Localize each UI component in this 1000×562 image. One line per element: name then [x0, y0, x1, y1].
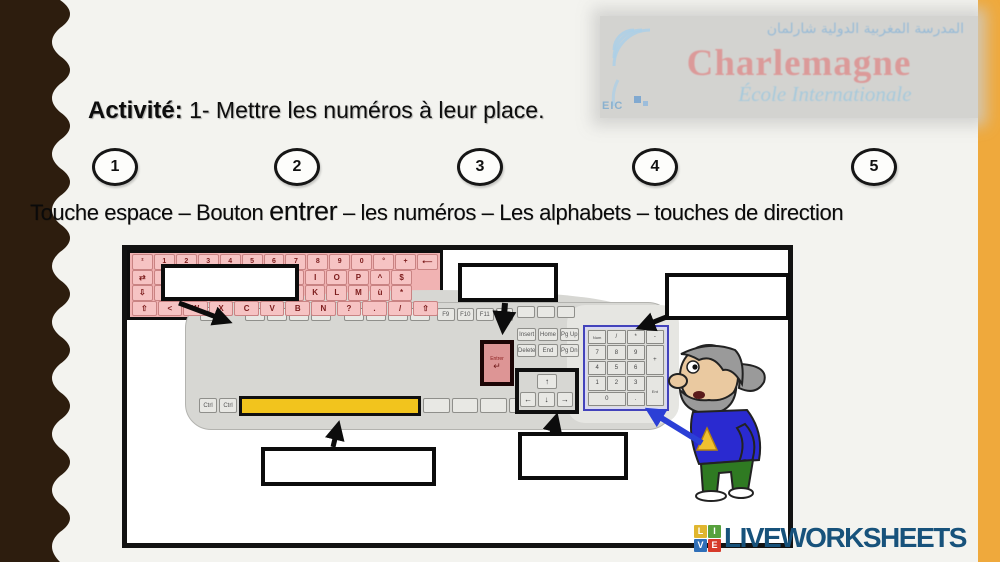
keyboard-key: ⟵ [417, 254, 438, 270]
keyboard-key: < [158, 301, 183, 317]
word-bank-segment: – les numéros – Les alphabets – touches … [337, 200, 843, 225]
system-keys [517, 306, 575, 318]
keypad-key: 8 [607, 345, 625, 359]
keypad-key: 6 [627, 361, 645, 375]
keyboard-key: ² [132, 254, 153, 270]
keyboard-key: Ctrl [199, 398, 217, 413]
keyboard-key: ⇄ [132, 270, 153, 286]
logo-tile-v: V [694, 539, 707, 552]
liveworksheets-logo: L I V E LIVEWORKSHEETS [694, 522, 966, 554]
answer-box-space[interactable] [261, 447, 436, 486]
keyboard-key: B [285, 301, 310, 317]
number-circle-2: 2 [274, 148, 320, 186]
school-logo: EIC المدرسة المغربية الدولية شارلمان Cha… [600, 16, 978, 118]
activity-title: Activité: 1- Mettre les numéros à leur p… [88, 97, 544, 125]
answer-box-alphabets[interactable] [161, 264, 299, 301]
keyboard-key: ↓ [538, 392, 554, 407]
keypad-key: 1 [588, 376, 606, 390]
brown-wave-border [0, 0, 100, 562]
keyboard-key [517, 306, 535, 318]
keyboard-key: Insert [517, 328, 536, 341]
keyboard-key: K [305, 285, 326, 301]
keypad-key: 7 [588, 345, 606, 359]
keypad-key: 2 [607, 376, 625, 390]
keyboard-key: $ [391, 270, 412, 286]
answer-box-enter[interactable] [458, 263, 558, 302]
logo-tile-e: E [708, 539, 721, 552]
nav-keys-row-2: DeleteEndPg Dn [517, 344, 579, 357]
word-bank-segment-entrer: entrer [269, 196, 337, 226]
logo-tile-l: L [694, 525, 707, 538]
keyboard-key: ⇧ [413, 301, 438, 317]
keyboard-key [480, 398, 507, 413]
keyboard-key: ⇩ [132, 285, 153, 301]
keyboard-key: L [326, 285, 347, 301]
keyboard-key: ← [520, 392, 536, 407]
arrow-bottom-row: ←↓→ [520, 392, 573, 407]
number-circle-4: 4 [632, 148, 678, 186]
keyboard-key: W [183, 301, 208, 317]
word-bank-segment: Touche espace – Bouton [30, 200, 269, 225]
keyboard-key: End [538, 344, 557, 357]
keyboard-key: I [305, 270, 326, 286]
answer-box-direction[interactable] [518, 432, 628, 480]
keyboard-key: 9 [329, 254, 350, 270]
keyboard-key: 0 [351, 254, 372, 270]
logo-subtitle: École Internationale [680, 82, 970, 107]
keyboard-key [537, 306, 555, 318]
keyboard-key: Delete [517, 344, 536, 357]
keyboard-key: ^ [370, 270, 391, 286]
orange-side-border [978, 0, 1000, 562]
keypad-key: Num [588, 330, 606, 344]
answer-box-numbers[interactable] [665, 273, 790, 320]
keyboard-key [452, 398, 479, 413]
keypad-key: 9 [627, 345, 645, 359]
keyboard-key: Ctrl [219, 398, 237, 413]
arrow-up-key: ↑ [537, 374, 557, 389]
keyboard-key: + [395, 254, 416, 270]
keyboard-key: Pg Dn [560, 344, 579, 357]
keyboard-key: . [362, 301, 387, 317]
worksheet-page: { "page": { "background": "#f3f3ef", "le… [0, 0, 1000, 562]
liveworksheets-icon: L I V E [694, 525, 721, 552]
keypad-key: 5 [607, 361, 625, 375]
word-bank: Touche espace – Bouton entrer – les numé… [30, 196, 990, 227]
keyboard-key: O [326, 270, 347, 286]
keyboard-key: F12 [496, 308, 514, 321]
arrow-up-row: ↑ [537, 374, 557, 389]
bottom-left-keys: CtrlCtrl [199, 398, 237, 413]
arrow-keys-highlight: ↑ ←↓→ [515, 368, 579, 414]
liveworksheets-wordmark: LIVEWORKSHEETS [724, 522, 966, 554]
keyboard-key: / [388, 301, 413, 317]
number-circle-5: 5 [851, 148, 897, 186]
logo-school-name: Charlemagne [634, 42, 964, 85]
keyboard-key [423, 398, 450, 413]
keyboard-key: * [391, 285, 412, 301]
keyboard-key: Home [538, 328, 557, 341]
keyboard-key: ° [373, 254, 394, 270]
keyboard-key: M [348, 285, 369, 301]
keyboard-key: N [311, 301, 336, 317]
logo-tile-i: I [708, 525, 721, 538]
keypad-key: - [646, 330, 664, 344]
keypad-key: + [646, 345, 664, 375]
keypad-key: . [627, 392, 645, 406]
eic-mark: EIC [602, 100, 623, 112]
worksheet-image-frame: Esc F1F2F3F4 F5F6F7F8 F9F10F11F12 ²12345… [122, 245, 793, 548]
numeric-keypad-highlight: Num / * - 7 8 9 + 4 5 6 1 2 3 Ent 0 . [583, 325, 669, 411]
keyboard-key [557, 306, 575, 318]
number-circle-3: 3 [457, 148, 503, 186]
keyboard-key: ù [370, 285, 391, 301]
keyboard-key: F11 [476, 308, 494, 321]
keyboard-key: → [557, 392, 573, 407]
cartoon-man [663, 338, 785, 520]
keypad-key: Ent [646, 376, 664, 406]
azerty-row-low: ⇧<WXCVBN?./⇧ [132, 301, 438, 317]
keyboard-key: F10 [457, 308, 475, 321]
keypad-key: / [607, 330, 625, 344]
keyboard-key: Pg Up [560, 328, 579, 341]
number-circle-1: 1 [92, 148, 138, 186]
keyboard-key: ? [337, 301, 362, 317]
keypad-key: 3 [627, 376, 645, 390]
logo-arabic-text: المدرسة المغربية الدولية شارلمان [664, 21, 964, 37]
keyboard-key: C [234, 301, 259, 317]
keypad-key: * [627, 330, 645, 344]
keyboard-key: V [260, 301, 285, 317]
keyboard-key: F9 [437, 308, 455, 321]
enter-key-highlight: Entrer ↵ [480, 340, 514, 386]
activity-instruction: 1- Mettre les numéros à leur place. [189, 97, 544, 123]
space-bar-highlight [239, 396, 421, 416]
fkeys-group-3: F9F10F11F12 [437, 308, 513, 321]
nav-keys-row-1: InsertHomePg Up [517, 328, 579, 341]
keypad-key: 0 [588, 392, 626, 406]
keypad-key: 4 [588, 361, 606, 375]
keyboard-key: 8 [307, 254, 328, 270]
keyboard-key: P [348, 270, 369, 286]
activity-label: Activité: [88, 97, 183, 124]
enter-key-glyph: ↵ [493, 362, 501, 370]
keyboard-key: ⇧ [132, 301, 157, 317]
keyboard-key: X [209, 301, 234, 317]
